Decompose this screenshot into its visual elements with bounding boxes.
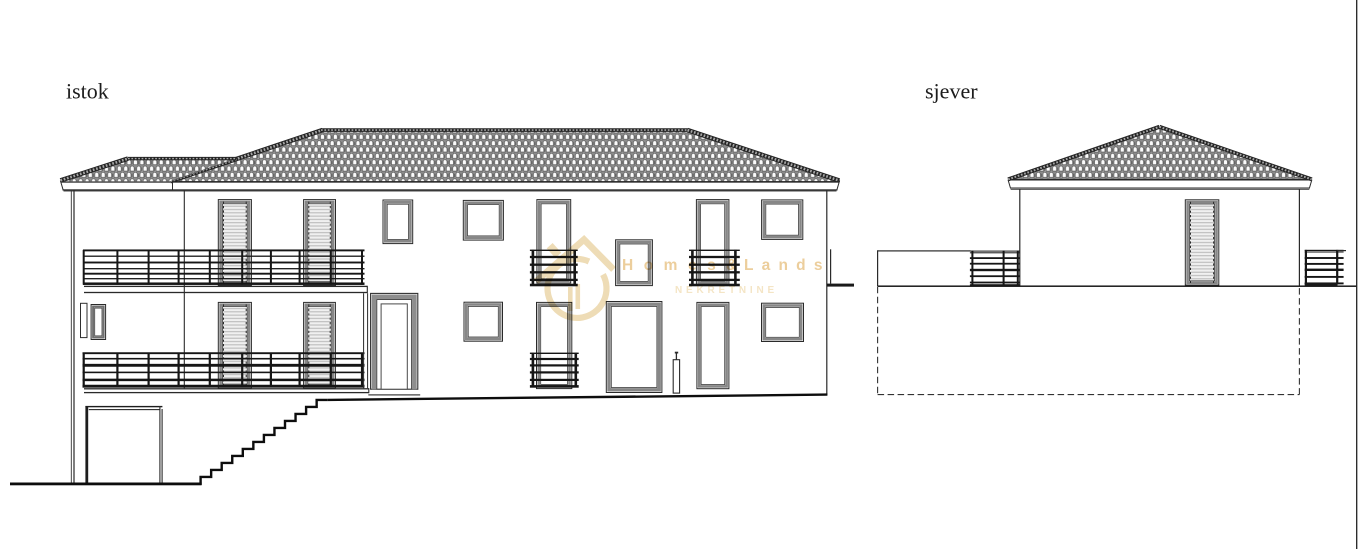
svg-text:&: & [726,257,737,274]
svg-text:NEKRETNINE: NEKRETNINE [675,285,778,296]
svg-text:sjever: sjever [925,79,978,104]
svg-text:istok: istok [66,79,109,104]
svg-text:Lands: Lands [744,257,831,274]
svg-text:Homes: Homes [622,257,726,274]
